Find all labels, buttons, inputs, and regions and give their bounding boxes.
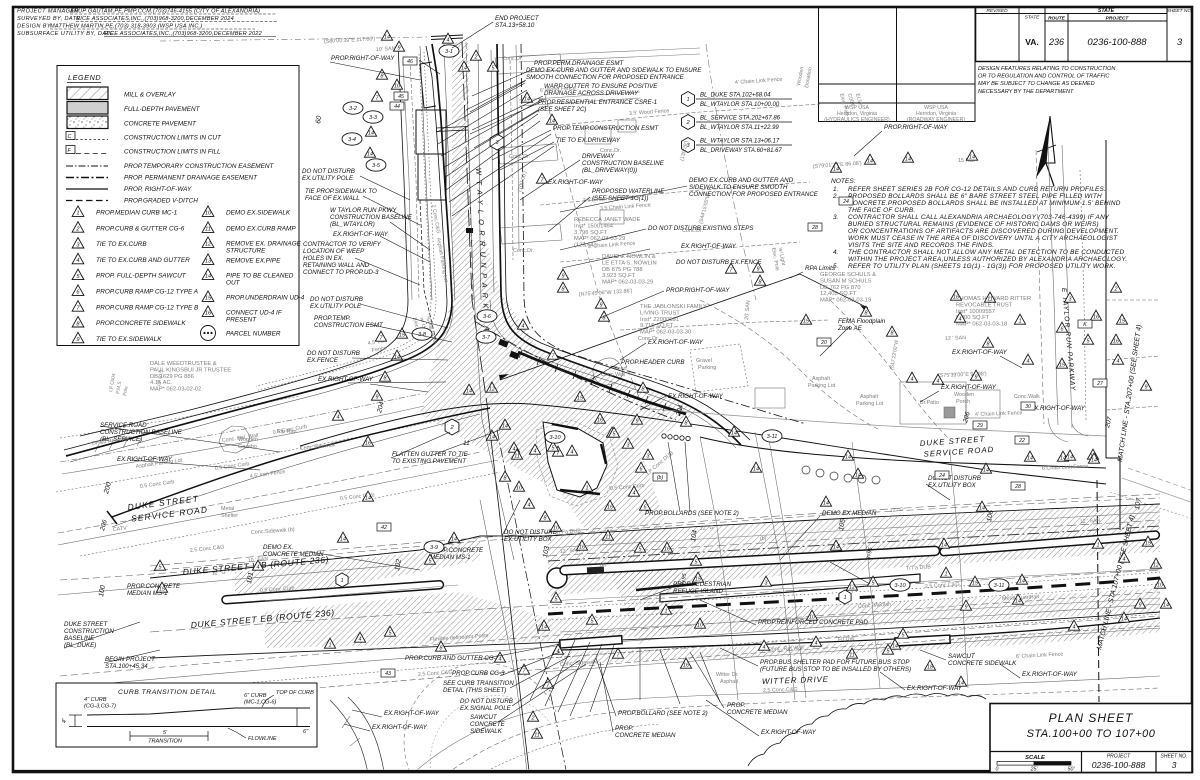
svg-text:4: 4 [1027,359,1030,365]
svg-text:9,716 SQ.FT: 9,716 SQ.FT [640,323,674,329]
svg-text:14: 14 [1091,458,1097,464]
svg-text:10' SAN: 10' SAN [376,46,396,53]
svg-text:4: 4 [815,641,818,647]
svg-text:3: 3 [765,581,768,587]
svg-text:SUBSURFACE UTILITY BY, DATE: SUBSURFACE UTILITY BY, DATE [17,31,114,37]
svg-text:4: 4 [937,379,940,385]
svg-text:(b): (b) [760,536,767,542]
svg-text:14: 14 [983,468,989,474]
svg-text:FEMA Floodplain: FEMA Floodplain [838,318,886,325]
svg-text:(SEE SHEET 2C): (SEE SHEET 2C) [538,106,586,113]
svg-text:11: 11 [849,653,855,659]
svg-text:PROP.BOLLARDS (SEE NOTE 2): PROP.BOLLARDS (SEE NOTE 2) [645,510,739,517]
svg-text:3-6: 3-6 [483,314,492,320]
svg-text:14: 14 [845,455,851,461]
svg-text:VISITS THE SITE AND RECORDS TH: VISITS THE SITE AND RECORDS THE FINDS. [848,242,994,249]
svg-text:PLAN SHEET: PLAN SHEET [1049,711,1134,725]
svg-text:4: 4 [557,649,560,655]
svg-text:CONTRACTOR TO VERIFY: CONTRACTOR TO VERIFY [303,241,382,248]
svg-text:8: 8 [381,74,384,80]
svg-text:(b): (b) [657,475,664,481]
svg-text:(CG-3,CG-7): (CG-3,CG-7) [84,703,116,709]
svg-text:13: 13 [205,259,212,265]
svg-text:15: 15 [1059,363,1066,369]
svg-text:Metal: Metal [221,506,234,512]
svg-text:DEMO EX.CURB RAMP: DEMO EX.CURB RAMP [226,226,296,233]
svg-text:SIDEWALK: SIDEWALK [470,728,503,735]
svg-text:1: 1 [686,97,689,103]
svg-text:14: 14 [451,537,457,543]
svg-text:2: 2 [1114,287,1118,293]
svg-text:3: 3 [1069,297,1072,303]
svg-text:29: 29 [976,423,983,429]
svg-text:10: 10 [516,486,522,492]
svg-text:LOCATION OF WEEP: LOCATION OF WEEP [303,248,365,255]
svg-text:3-2: 3-2 [349,106,358,112]
svg-text:4: 4 [528,503,531,509]
svg-text:PROJECT: PROJECT [1107,754,1131,760]
svg-text:9: 9 [398,46,401,52]
svg-text:END PROJECT: END PROJECT [495,15,540,22]
svg-text:PROP.: PROP. [615,725,633,732]
svg-text:14: 14 [1163,603,1169,609]
svg-text:4" CURB: 4" CURB [84,697,107,703]
svg-text:CONSTRUCTION LIMITS IN CUT: CONSTRUCTION LIMITS IN CUT [124,135,222,142]
svg-text:8: 8 [685,421,688,427]
svg-text:DALE WEEDTRUSTEE &: DALE WEEDTRUSTEE & [150,361,217,367]
svg-text:DUKE STREET: DUKE STREET [64,621,109,628]
svg-text:ANUP GAUTAM,PE,PMP,CCM,(703)74: ANUP GAUTAM,PE,PMP,CCM,(703)746-4155 (CI… [69,9,260,15]
svg-text:11: 11 [987,297,993,303]
svg-text:15: 15 [803,319,810,325]
svg-text:Conc.Dr.: Conc.Dr. [682,228,703,234]
svg-text:EX.UTILITY BOX: EX.UTILITY BOX [504,536,553,543]
svg-text:MAP* 062-03-03-30: MAP* 062-03-03-30 [640,330,691,336]
svg-text:8: 8 [865,311,868,317]
svg-text:3-3: 3-3 [369,115,378,121]
svg-text:16: 16 [205,311,212,317]
svg-text:6: 6 [644,505,647,511]
svg-text:3-9: 3-9 [430,545,438,551]
svg-text:20: 20 [820,340,827,346]
svg-text:9: 9 [975,375,978,381]
svg-text:236: 236 [1048,37,1064,47]
svg-text:PROJECT: PROJECT [1106,16,1130,22]
svg-text:14: 14 [905,157,911,163]
svg-text:3-5: 3-5 [372,163,381,169]
svg-text:Br.Patio: Br.Patio [920,400,939,406]
svg-text:27: 27 [1096,381,1104,387]
svg-text:CONTRACTOR SHALL CALL ALEXANDR: CONTRACTOR SHALL CALL ALEXANDRIA ARCHAEO… [848,214,1110,221]
svg-text:PROP.BOLLARD (SEE NOTE 2): PROP.BOLLARD (SEE NOTE 2) [618,710,708,717]
svg-text:14: 14 [367,152,373,158]
svg-text:THE CONTRACTOR SHALL NOT ALLOW: THE CONTRACTOR SHALL NOT ALLOW ANY METAL… [848,249,1124,256]
svg-text:14: 14 [1121,617,1127,623]
svg-text:(FUTURE BUS STOP TO BE INSALLE: (FUTURE BUS STOP TO BE INSALLED BY OTHER… [760,666,911,673]
svg-text:4: 4 [633,491,636,497]
svg-text:REFER SHEET SERIES 2B FOR CG-1: REFER SHEET SERIES 2B FOR CG-12 DETAILS … [848,186,1106,193]
svg-text:EX.FENCE: EX.FENCE [307,357,339,364]
svg-text:18: 18 [927,665,933,671]
svg-text:4: 4 [571,450,574,456]
svg-text:BL_DRIVEWAY STA.60+81.67: BL_DRIVEWAY STA.60+81.67 [700,148,782,154]
svg-text:11: 11 [514,454,520,460]
svg-text:TIE TO EX.DRIVEWAY: TIE TO EX.DRIVEWAY [556,137,621,144]
svg-text:Porch: Porch [956,399,970,405]
svg-text:OUT: OUT [226,280,241,287]
svg-text:1: 1 [945,572,948,578]
svg-text:EX.UTILITY BOX: EX.UTILITY BOX [928,482,977,489]
svg-text:RICE ASSOCIATES,INC.,(703)968-: RICE ASSOCIATES,INC.,(703)968-3200,DECEM… [76,16,234,22]
svg-text:LE ETTA S. NOWLIN: LE ETTA S. NOWLIN [602,260,657,266]
svg-text:0: 0 [996,766,999,772]
svg-text:11: 11 [205,227,211,233]
svg-text:TOP OF CURB: TOP OF CURB [276,690,314,696]
svg-text:46: 46 [407,59,413,65]
svg-text:Gazebo: Gazebo [238,444,257,450]
svg-text:MAP* 062-03-02-02: MAP* 062-03-02-02 [150,387,201,393]
svg-text:14: 14 [394,355,400,361]
svg-text:14: 14 [524,97,530,103]
svg-text:PROP.RIGHT-OF-WAY: PROP.RIGHT-OF-WAY [884,124,948,131]
svg-text:9: 9 [757,267,760,273]
svg-text:DEMO EX.SIDEWALK: DEMO EX.SIDEWALK [226,210,291,217]
svg-text:PROP.HEADER CURB: PROP.HEADER CURB [621,359,685,366]
svg-text:DB 762 PG 870: DB 762 PG 870 [820,285,861,291]
svg-text:9: 9 [562,274,565,280]
svg-text:GEORGE SCHULS &: GEORGE SCHULS & [820,272,876,278]
svg-text:1: 1 [586,486,589,492]
svg-text:DEMO EX.: DEMO EX. [263,544,293,551]
svg-text:PROP.TEMPORARY CONSTRUCTION EA: PROP.TEMPORARY CONSTRUCTION EASEMENT [124,163,274,170]
svg-text:Wooden: Wooden [954,392,974,398]
svg-text:1: 1 [340,578,343,584]
svg-text:SHEET NO.: SHEET NO. [1167,8,1193,14]
svg-text:12 ' G: 12 ' G [890,507,904,514]
svg-text:PROP.CURB RAMP CG-12 TYPE A: PROP.CURB RAMP CG-12 TYPE A [96,289,198,296]
svg-text:OR TO REGULATION AND CONTROL O: OR TO REGULATION AND CONTROL OF TRAFFIC [978,74,1110,80]
svg-text:NECESSARY BY THE DEPARTMENT: NECESSARY BY THE DEPARTMENT [978,89,1074,95]
svg-text:1: 1 [76,211,79,217]
svg-text:Parking Lot: Parking Lot [856,401,884,407]
svg-text:MATTHEW MARTIN,PE,(703) 318-39: MATTHEW MARTIN,PE,(703) 318-3903 (WSP US… [50,24,202,30]
svg-text:14: 14 [1015,599,1021,605]
svg-text:14: 14 [753,467,759,473]
svg-text:DO NOT DISTURB: DO NOT DISTURB [307,350,360,357]
svg-text:6: 6 [640,467,643,473]
svg-text:SERVICE ROAD: SERVICE ROAD [100,422,147,429]
svg-text:STA.100+00 TO 107+00: STA.100+00 TO 107+00 [1027,728,1156,740]
svg-text:RETAINING WALL AND: RETAINING WALL AND [303,262,370,269]
svg-text:BASELINE: BASELINE [64,635,95,642]
svg-text:16: 16 [607,505,613,511]
svg-text:15: 15 [577,396,584,402]
svg-text:14: 14 [979,506,985,512]
svg-text:4: 4 [1117,359,1120,365]
svg-text:15: 15 [1119,319,1126,325]
svg-text:NOTES:: NOTES: [831,178,856,185]
svg-text:DRIVEWAY: DRIVEWAY [582,153,615,160]
svg-text:3-10: 3-10 [549,435,561,441]
svg-text:DEMO EX.CURB AND GUTTER AND SI: DEMO EX.CURB AND GUTTER AND SIDEWALK TO … [526,67,702,74]
svg-text:9: 9 [1139,603,1142,609]
svg-text:12,405 SQ.FT: 12,405 SQ.FT [820,291,857,297]
svg-text:Conc.Dr.: Conc.Dr. [502,56,523,62]
svg-text:PROP.TEMP.: PROP.TEMP. [314,315,351,322]
svg-text:3,796 SQ.FT: 3,796 SQ.FT [574,230,608,236]
svg-text:STA.13+58.10: STA.13+58.10 [495,22,535,29]
svg-text:CURB TRANSITION DETAIL: CURB TRANSITION DETAIL [118,689,217,696]
svg-text:SURVEYED BY, DATE: SURVEYED BY, DATE [17,16,81,22]
svg-text:PROP.: PROP. [727,702,745,709]
svg-text:4: 4 [763,645,766,651]
svg-text:CONSTRUCTION: CONSTRUCTION [64,628,114,635]
svg-text:FACE OF EX.WALL: FACE OF EX.WALL [305,195,360,202]
svg-text:PROP.CURB CG-3: PROP.CURB CG-3 [452,670,505,677]
svg-text:8: 8 [440,646,443,652]
svg-text:8: 8 [562,287,565,293]
svg-text:Conc.Dr.: Conc.Dr. [638,336,659,342]
svg-text:THE JABLONSKI FAMILY: THE JABLONSKI FAMILY [640,304,707,310]
svg-text:Asphalt: Asphalt [812,376,830,382]
svg-text:14: 14 [340,537,346,543]
svg-text:Inst* 15001464: Inst* 15001464 [574,223,614,229]
svg-text:22: 22 [1018,438,1025,444]
svg-text:FULL-DEPTH PAVEMENT: FULL-DEPTH PAVEMENT [124,106,201,113]
svg-text:REFUGE ISLAND: REFUGE ISLAND [673,588,723,595]
svg-text:EX.RIGHT-OF-WAY: EX.RIGHT-OF-WAY [372,724,428,731]
svg-text:9: 9 [636,419,639,425]
svg-text:10: 10 [1157,583,1163,589]
svg-text:3: 3 [647,454,650,460]
svg-text:BURIED STRUCTURAL REMAINS (EVI: BURIED STRUCTURAL REMAINS (EVIDENCE OF H… [848,221,1099,228]
svg-text:14: 14 [489,435,495,441]
svg-text:DAVID J. NOWLIN &: DAVID J. NOWLIN & [602,254,656,260]
svg-text:10: 10 [394,84,400,90]
svg-text:14: 14 [941,543,947,549]
svg-text:4: 4 [534,449,537,455]
svg-text:CONSTRUCTION BASELINE: CONSTRUCTION BASELINE [100,429,183,436]
svg-text:(MC-1,CG-6): (MC-1,CG-6) [244,699,276,705]
svg-text:TIE TO EX.CURB: TIE TO EX.CURB [96,241,147,248]
svg-text:REBECCA JANET WADE: REBECCA JANET WADE [574,217,640,223]
svg-text:4: 4 [76,258,79,264]
svg-text:EX.RIGHT-OF-WAY: EX.RIGHT-OF-WAY [668,393,724,400]
svg-text:FLATTEN GUTTER TO TIE: FLATTEN GUTTER TO TIE [392,451,469,458]
svg-text:PROP.BUS SHELTER PAD FOR FUTUR: PROP.BUS SHELTER PAD FOR FUTURE BUS STOP [760,659,910,666]
svg-text:Asphalt: Asphalt [860,394,878,400]
svg-text:DETAIL (THIS SHEET): DETAIL (THIS SHEET) [443,687,506,694]
svg-text:4: 4 [499,657,502,663]
svg-text:10: 10 [809,615,815,621]
svg-text:LEGEND: LEGEND [68,73,101,82]
svg-text:Inst* 22000591: Inst* 22000591 [640,317,679,323]
svg-text:SUSAN M SCHULS: SUSAN M SCHULS [820,278,872,284]
svg-text:PROP.TEMP.CONSTRUCTION ESMT: PROP.TEMP.CONSTRUCTION ESMT [553,125,660,132]
svg-text:11: 11 [605,535,611,541]
svg-text:45: 45 [398,94,404,100]
svg-text:PIPE TO BE CLEANED: PIPE TO BE CLEANED [226,273,294,280]
svg-text:PROP.UNDERDRAIN UD-4: PROP.UNDERDRAIN UD-4 [226,295,305,302]
svg-text:CONCRETE PAVEMENT: CONCRETE PAVEMENT [124,121,197,128]
svg-text:14: 14 [833,545,839,551]
svg-text:REVISED: REVISED [986,8,1008,14]
svg-text:CONNECT TO PROP.UD-3: CONNECT TO PROP.UD-3 [303,269,379,276]
svg-text:TIE TO EX.SIDEWALK: TIE TO EX.SIDEWALK [96,336,162,343]
svg-text:TIE PROP.SIDEWALK TO: TIE PROP.SIDEWALK TO [305,188,377,195]
svg-text:14: 14 [365,496,371,502]
svg-text:RPA Limits: RPA Limits [805,265,835,272]
svg-text:14: 14 [958,681,964,687]
svg-text:4: 4 [1123,557,1126,563]
svg-text:WORK MUST CEASE IN THE AREA OF: WORK MUST CEASE IN THE AREA OF DISCOVERY… [848,235,1118,242]
svg-text:LIVING TRUST: LIVING TRUST [640,310,680,316]
svg-text:PROP.GRADED V-DITCH: PROP.GRADED V-DITCH [124,198,198,205]
svg-text:EX.RIGHT-OF-WAY: EX.RIGHT-OF-WAY [952,349,1008,356]
svg-text:1: 1 [329,643,332,649]
svg-text:1: 1 [1097,543,1100,549]
svg-text:14: 14 [1027,456,1033,462]
svg-text:VA.: VA. [1025,37,1039,47]
svg-text:DB 875 PG 788: DB 875 PG 788 [602,267,643,273]
svg-text:EX.UTILITY POLE: EX.UTILITY POLE [310,303,362,310]
svg-text:12 ' G: 12 ' G [700,525,714,532]
svg-text:CONCRETE MEDIAN: CONCRETE MEDIAN [727,709,788,716]
svg-text:HOLES IN EX.: HOLES IN EX. [303,255,344,262]
svg-text:0236-100-888: 0236-100-888 [1087,37,1147,48]
svg-text:2: 2 [474,55,478,61]
svg-text:EX.RIGHT-OF-WAY: EX.RIGHT-OF-WAY [941,384,997,391]
svg-text:9: 9 [376,395,379,401]
svg-text:EX.RIGHT-OF-WAY: EX.RIGHT-OF-WAY [681,243,737,250]
svg-text:EX.RIGHT-OF-WAY: EX.RIGHT-OF-WAY [333,231,389,238]
svg-text:3-11: 3-11 [767,434,778,440]
svg-text:MAP* 062-03-03-19: MAP* 062-03-03-19 [820,298,871,304]
svg-text:CONCRETE: CONCRETE [470,721,506,728]
svg-text:THE FACE OF CURB.: THE FACE OF CURB. [848,207,916,214]
svg-text:WITHIN THE PROJECT AREA,UNLESS: WITHIN THE PROJECT AREA,UNLESS AUTHORIZE… [848,256,1127,263]
svg-text:9: 9 [600,303,603,309]
svg-text:TO EXISTING PAVEMENT: TO EXISTING PAVEMENT [392,458,467,465]
svg-text:REVOCABLE TRUST: REVOCABLE TRUST [956,302,1013,308]
svg-text:50': 50' [1068,766,1076,772]
svg-text:15: 15 [695,577,702,583]
svg-text:4.: 4. [833,249,838,256]
svg-text:CONCRETE MEDIAN: CONCRETE MEDIAN [263,551,324,558]
svg-text:12: 12 [1153,563,1159,569]
svg-text:EX.RIGHT-OF-WAY: EX.RIGHT-OF-WAY [548,179,604,186]
svg-text:60: 60 [315,115,323,124]
svg-text:14: 14 [969,155,975,161]
svg-text:MAY BE SUBJECT TO CHANGE AS DE: MAY BE SUBJECT TO CHANGE AS DEEMED [978,81,1095,87]
svg-text:3-1: 3-1 [445,49,453,55]
svg-text:4: 4 [359,637,362,643]
svg-text:OR CONCENTRATIONS OF ARTIFACTS: OR CONCENTRATIONS OF ARTIFACTS ARE DISCO… [848,228,1119,235]
svg-text:(ROADWAY ENGINEER): (ROADWAY ENGINEER) [907,117,965,123]
svg-text:Parking Lot: Parking Lot [808,383,836,389]
svg-text:STATE: STATE [1025,15,1041,21]
svg-text:24: 24 [842,199,849,205]
svg-text:C: C [68,134,72,140]
svg-text:24: 24 [938,473,945,479]
svg-text:MAP* 062-03-03-29: MAP* 062-03-03-29 [602,280,653,286]
svg-text:REMOVE EX. DRAINAGE: REMOVE EX. DRAINAGE [226,241,302,248]
svg-text:1: 1 [843,595,846,601]
svg-text:0236-100-888: 0236-100-888 [1092,760,1146,770]
svg-text:TRANSITION: TRANSITION [148,739,183,745]
svg-text:EX.RIGHT-OF-WAY: EX.RIGHT-OF-WAY [384,710,440,717]
svg-text:Witter Dr.: Witter Dr. [716,672,738,678]
svg-text:BL_WTAYLOR STA.13+06.17: BL_WTAYLOR STA.13+06.17 [700,139,780,145]
svg-text:EX.RIGHT-OF-WAY: EX.RIGHT-OF-WAY [1022,671,1078,678]
svg-text:PROP. PERMANENT DRAINAGE EASEM: PROP. PERMANENT DRAINAGE EASEMENT [124,175,258,182]
svg-text:8: 8 [504,476,507,482]
svg-text:10: 10 [697,623,703,629]
svg-text:12 ' SAN: 12 ' SAN [945,335,966,342]
svg-text:DB 1629 PG 886: DB 1629 PG 886 [150,374,194,380]
svg-text:8: 8 [384,376,387,382]
svg-text:3-11: 3-11 [994,583,1005,589]
svg-text:DEMO EX.MEDIAN: DEMO EX.MEDIAN [822,510,877,517]
svg-text:14: 14 [833,167,839,173]
svg-text:14: 14 [892,644,898,650]
svg-text:14: 14 [541,625,547,631]
svg-text:CONSTRUCTION LIMITS IN FILL: CONSTRUCTION LIMITS IN FILL [124,149,221,156]
svg-text:14: 14 [502,424,508,430]
svg-text:15: 15 [1145,541,1152,547]
svg-text:CONSTRUCTION BASELINE: CONSTRUCTION BASELINE [582,160,665,167]
svg-text:25': 25' [1030,766,1039,772]
svg-text:44: 44 [394,104,400,110]
svg-text:SAWCUT: SAWCUT [948,653,976,660]
svg-text:(BL_WTAYLOR): (BL_WTAYLOR) [330,221,375,228]
svg-text:BL_WTAYLOR STA.10+00.00: BL_WTAYLOR STA.10+00.00 [700,102,780,108]
svg-text:16: 16 [953,295,959,301]
svg-text:PROP.PERM.DRAINAGE ESMT: PROP.PERM.DRAINAGE ESMT [534,60,624,67]
svg-text:3: 3 [1172,760,1177,770]
svg-text:4: 4 [337,415,340,421]
svg-text:CONCRETE.PROPOSED BOLLARDS SHA: CONCRETE.PROPOSED BOLLARDS SHALL BE INST… [848,200,1121,207]
svg-text:CONCRETE SIDEWALK: CONCRETE SIDEWALK [948,660,1017,667]
svg-text:DO NOT DISTURB: DO NOT DISTURB [460,698,513,705]
svg-text:DO NOT DISTURB: DO NOT DISTURB [504,529,557,536]
svg-text:12: 12 [849,585,855,591]
svg-text:2.5 Conc.C&G: 2.5 Conc.C&G [763,687,798,694]
svg-text:Pond: Pond [614,366,627,372]
svg-text:4: 4 [257,565,260,571]
svg-text:STA.100+45.34: STA.100+45.34 [105,663,148,670]
svg-text:8: 8 [759,280,762,286]
svg-text:TIE TO EX.CURB AND GUTTER: TIE TO EX.CURB AND GUTTER [96,257,190,264]
svg-text:15: 15 [159,587,166,593]
svg-text:16: 16 [1113,339,1119,345]
svg-text:PROP.CONCRETE SIDEWALK: PROP.CONCRETE SIDEWALK [96,320,186,327]
svg-text:6: 6 [1061,327,1064,333]
svg-text:Inst* 10009557: Inst* 10009557 [956,309,995,315]
svg-text:EX.SIGNAL POLE: EX.SIGNAL POLE [460,705,512,712]
svg-text:SCALE: SCALE [1025,755,1046,761]
svg-text:3: 3 [627,443,630,449]
svg-text:PROP.RESIDENTIAL ENTRANCE CSRE: PROP.RESIDENTIAL ENTRANCE CSRE-1 [538,99,657,106]
svg-text:PROP, RIGHT-OF-WAY: PROP, RIGHT-OF-WAY [124,186,192,193]
svg-text:SAWCUT: SAWCUT [470,714,498,721]
svg-text:12: 12 [489,387,495,393]
svg-text:F0 DW: F0 DW [838,636,856,643]
svg-text:9: 9 [1145,385,1148,391]
svg-text:PROP.CURB & GUTTER CG-6: PROP.CURB & GUTTER CG-6 [96,225,185,232]
svg-text:SHEET NO.: SHEET NO. [1161,754,1188,760]
svg-text:Conc.Wall: Conc.Wall [601,372,625,378]
